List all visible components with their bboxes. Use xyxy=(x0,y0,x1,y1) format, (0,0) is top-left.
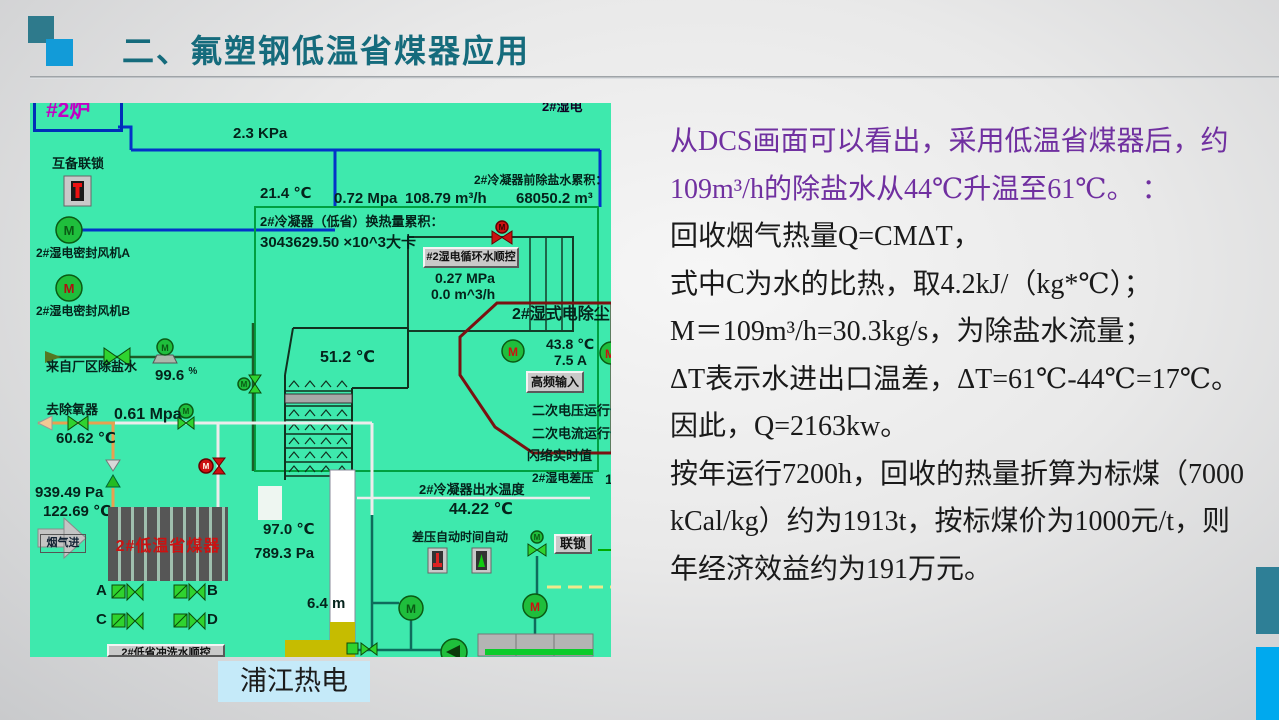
economizer-name: 2#低温省煤器 xyxy=(116,532,221,556)
annotation-line: 回收烟气热量Q=CMΔT， xyxy=(670,213,1255,261)
heat-acc-value: 3043629.50 ×10^3大卡 xyxy=(260,234,416,251)
pressure-7893: 789.3 Pa xyxy=(254,545,314,562)
flue-gas-in-label: 烟气进 xyxy=(40,534,86,553)
furnace-tag: #2炉 xyxy=(46,103,90,124)
pressure-027: 0.27 MPa xyxy=(435,270,495,286)
title-divider xyxy=(30,76,1279,79)
economizer-block: 2#低温省煤器 xyxy=(108,507,228,581)
temp-512: 51.2 ℃ xyxy=(320,349,375,367)
svg-text:M: M xyxy=(203,462,210,471)
temp-970: 97.0 ℃ xyxy=(263,521,315,538)
svg-text:M: M xyxy=(605,347,611,361)
secondary-current-label: 二次电流运行值 xyxy=(532,427,611,442)
annotation-line: 年经济效益约为191万元。 xyxy=(670,546,1255,594)
level-tank xyxy=(285,470,355,657)
fan-a-label: 2#湿电密封风机A xyxy=(36,247,130,261)
valve-letter-b: B xyxy=(207,582,218,599)
slide: 二、氟塑钢低温省煤器应用 xyxy=(0,0,1279,720)
check-arrow-up xyxy=(106,475,120,487)
pressure-top: 2.3 KPa xyxy=(233,125,287,142)
acc-desalt-value: 68050.2 m³ xyxy=(516,190,593,207)
annotation-line: M＝109m³/h=30.3kg/s，为除盐水流量； xyxy=(670,308,1255,356)
secondary-voltage-label: 二次电压运行值 xyxy=(532,404,611,419)
svg-text:M: M xyxy=(508,345,518,359)
slide-title: 二、氟塑钢低温省煤器应用 xyxy=(122,26,530,72)
control-valve-stand xyxy=(153,355,177,363)
temp-21: 21.4 ℃ xyxy=(260,185,312,202)
deaerator-label: 去除氧器 xyxy=(46,403,98,418)
annotation-line: 109m³/h的除盐水从44℃升温至61℃。 ： xyxy=(670,166,1255,214)
flashover-label: 闪络实时值 xyxy=(527,449,592,464)
clipped-value: 1 xyxy=(605,471,611,487)
esp-dp-label: 2#湿电差压 xyxy=(532,472,593,486)
pressure-072: 0.72 Mpa xyxy=(334,190,397,207)
svg-text:M: M xyxy=(241,380,248,389)
accent-bar-teal xyxy=(1256,567,1279,634)
annotation-line: 从DCS画面可以看出，采用低温省煤器后，约 xyxy=(670,118,1255,166)
heat-acc-label: 2#冷凝器（低省）换热量累积： xyxy=(260,215,443,230)
pressure-061: 0.61 Mpa xyxy=(114,406,182,424)
interlock-label: 互备联锁 xyxy=(52,157,104,172)
svg-text:M: M xyxy=(64,281,75,296)
annotation-line: ΔT表示水进出口温差，ΔT=61℃-44℃=17℃。 xyxy=(670,356,1255,404)
annotation-line: 按年运行7200h，回收的热量折算为标煤（7000 xyxy=(670,451,1255,499)
valve-letter-c: C xyxy=(96,611,107,628)
pressure-939: 939.49 Pa xyxy=(35,484,103,501)
dp-auto-label: 差压自动 xyxy=(412,531,460,545)
annotation-line: 式中C为水的比热，取4.2kJ/（kg*℃）； xyxy=(670,261,1255,309)
deco-square-blue xyxy=(46,39,73,66)
accent-bar-blue xyxy=(1256,647,1279,720)
annotation-line: 因此，Q=2163kw。 xyxy=(670,403,1255,451)
svg-text:M: M xyxy=(64,223,75,238)
furnace-tag-box: #2炉 xyxy=(33,103,123,132)
svg-text:M: M xyxy=(534,533,541,542)
circulating-water-seq-button[interactable]: #2湿电循环水顺控 xyxy=(423,247,519,268)
temp-6062: 60.62 ℃ xyxy=(56,430,116,447)
valve-letter-d: D xyxy=(207,611,218,628)
flow-00: 0.0 m^3/h xyxy=(431,286,495,302)
clipped-top-text: 2#湿电 xyxy=(542,103,582,115)
economizer-flush-seq-button[interactable]: 2#低省冲洗水顺控 xyxy=(107,644,225,657)
flow-arrow-left xyxy=(38,416,52,430)
svg-text:M: M xyxy=(183,407,190,416)
high-frequency-input-button[interactable]: 高频输入 xyxy=(526,371,584,393)
duct-damper xyxy=(285,394,352,403)
temp-438: 43.8 ℃ xyxy=(546,336,594,352)
valve-letter-a: A xyxy=(96,582,107,599)
desalt-line xyxy=(45,323,253,471)
esp-title: 2#湿式电除尘 xyxy=(512,306,610,324)
dcs-screenshot: M M M M M M M M M M M M #2炉 xyxy=(30,103,611,657)
valve-position-996: 99.6 % xyxy=(155,366,197,384)
plant-name-label: 浦江热电 xyxy=(218,661,370,702)
svg-text:M: M xyxy=(499,223,506,232)
temp-12269: 122.69 ℃ xyxy=(43,503,111,520)
svg-text:M: M xyxy=(406,602,416,616)
time-auto-label: 时间自动 xyxy=(460,531,508,545)
acc-desalt-label: 2#冷凝器前除盐水累积： xyxy=(474,174,607,188)
small-white-box xyxy=(258,486,282,520)
annotation-line: kCal/kg）约为1913t，按标煤价为1000元/t，则 xyxy=(670,498,1255,546)
fan-b-label: 2#湿电密封风机B xyxy=(36,305,130,319)
current-75: 7.5 A xyxy=(554,352,587,368)
flow-10879: 108.79 m³/h xyxy=(405,190,487,207)
interlock-button[interactable]: 联锁 xyxy=(554,534,592,554)
outlet-temp-label: 2#冷凝器出水温度 xyxy=(419,483,524,498)
annotation-text: 从DCS画面可以看出，采用低温省煤器后，约 109m³/h的除盐水从44℃升温至… xyxy=(670,118,1255,593)
level-64: 6.4 m xyxy=(307,595,345,612)
check-arrow-down xyxy=(106,460,120,471)
source-desalt-label: 来自厂区除盐水 xyxy=(46,360,137,375)
svg-text:M: M xyxy=(161,343,169,353)
outlet-temp-value: 44.22 ℃ xyxy=(449,501,513,519)
svg-text:M: M xyxy=(530,600,540,614)
